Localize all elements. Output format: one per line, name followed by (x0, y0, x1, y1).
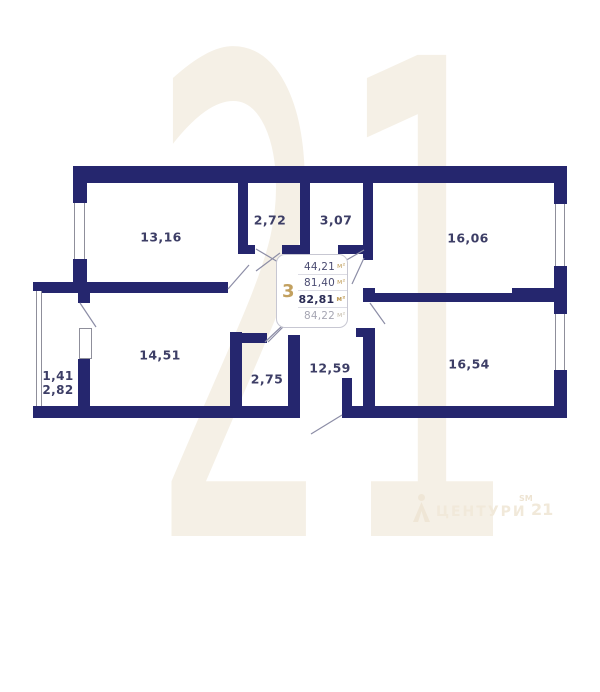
room-label-2-75: 2,75 (251, 372, 283, 387)
area-row-living: 44,21 м² (298, 259, 347, 275)
floor-plan: 13,16 2,72 3,07 16,06 14,51 2,75 12,59 1… (0, 0, 600, 600)
room-label-balcony: 1,41 2,82 (42, 370, 73, 398)
apartment-info-box: 3 44,21 м² 81,40 м² 82,81 м² 84,22 м² (276, 254, 348, 328)
room-label-16-54: 16,54 (448, 357, 490, 372)
area-value: 44,21 (304, 261, 335, 273)
area-rows: 44,21 м² 81,40 м² 82,81 м² 84,22 м² (298, 259, 347, 323)
room-label-16-06: 16,06 (447, 231, 489, 246)
room-label-12-59: 12,59 (309, 361, 351, 376)
room-label-3-07: 3,07 (320, 213, 352, 228)
balcony-area-reduced: 1,41 (42, 370, 73, 384)
room-label-13-16: 13,16 (140, 230, 182, 245)
area-value: 81,40 (304, 277, 335, 289)
area-row-full: 84,22 м² (298, 308, 347, 323)
floorplan-canvas: 21 (0, 0, 600, 600)
area-unit: м² (337, 278, 346, 286)
balcony-area-full: 2,82 (42, 384, 73, 398)
area-row-secondary: 81,40 м² (298, 275, 347, 291)
area-value: 84,22 (304, 310, 335, 322)
area-unit: м² (337, 262, 346, 270)
area-unit: м² (337, 311, 346, 319)
room-label-2-72: 2,72 (254, 213, 286, 228)
area-row-total: 82,81 м² (298, 291, 347, 308)
rooms-count: 3 (282, 281, 295, 302)
room-label-14-51: 14,51 (139, 348, 181, 363)
area-unit: м² (336, 295, 345, 303)
area-value: 82,81 (299, 293, 335, 306)
